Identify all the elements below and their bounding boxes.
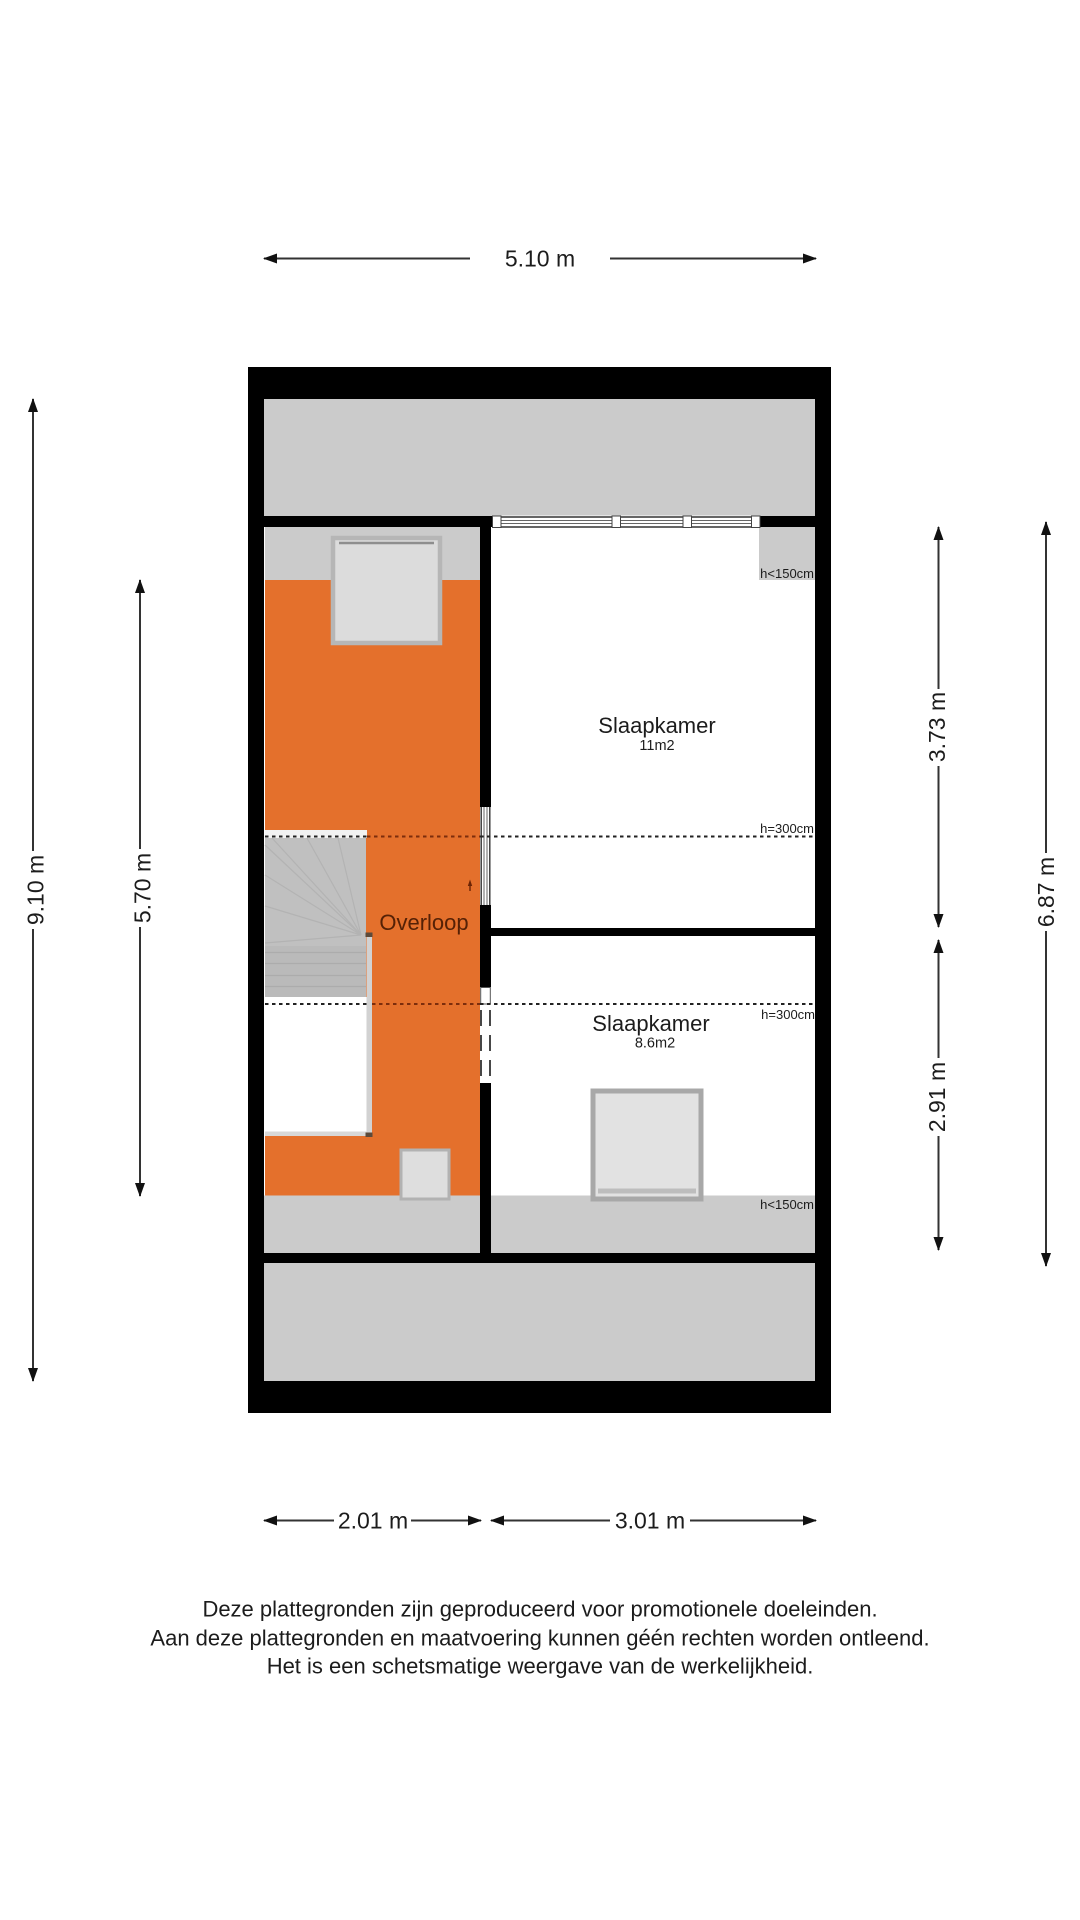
svg-text:6.87 m: 6.87 m (1033, 857, 1059, 927)
svg-text:8.6m2: 8.6m2 (635, 1036, 675, 1052)
svg-text:3.73 m: 3.73 m (924, 692, 950, 762)
svg-text:3.01 m: 3.01 m (615, 1508, 685, 1534)
svg-text:Slaapkamer: Slaapkamer (598, 713, 715, 738)
svg-text:5.70 m: 5.70 m (130, 853, 156, 923)
svg-text:Overloop: Overloop (379, 910, 468, 935)
svg-text:5.10 m: 5.10 m (505, 246, 575, 272)
svg-text:h=300cm: h=300cm (760, 821, 814, 836)
svg-text:11m2: 11m2 (639, 738, 674, 754)
svg-text:9.10 m: 9.10 m (23, 855, 49, 925)
svg-text:Slaapkamer: Slaapkamer (592, 1011, 709, 1036)
svg-text:h<150cm: h<150cm (760, 1197, 814, 1212)
svg-text:h=300cm: h=300cm (761, 1007, 815, 1022)
svg-text:Het is een schetsmatige weerga: Het is een schetsmatige weergave van de … (267, 1654, 814, 1679)
svg-text:Deze plattegronden zijn geprod: Deze plattegronden zijn geproduceerd voo… (202, 1597, 877, 1622)
svg-text:2.01 m: 2.01 m (338, 1508, 408, 1534)
svg-text:Aan deze plattegronden en maat: Aan deze plattegronden en maatvoering ku… (150, 1626, 929, 1651)
svg-text:2.91 m: 2.91 m (924, 1062, 950, 1132)
svg-text:h<150cm: h<150cm (760, 566, 814, 581)
